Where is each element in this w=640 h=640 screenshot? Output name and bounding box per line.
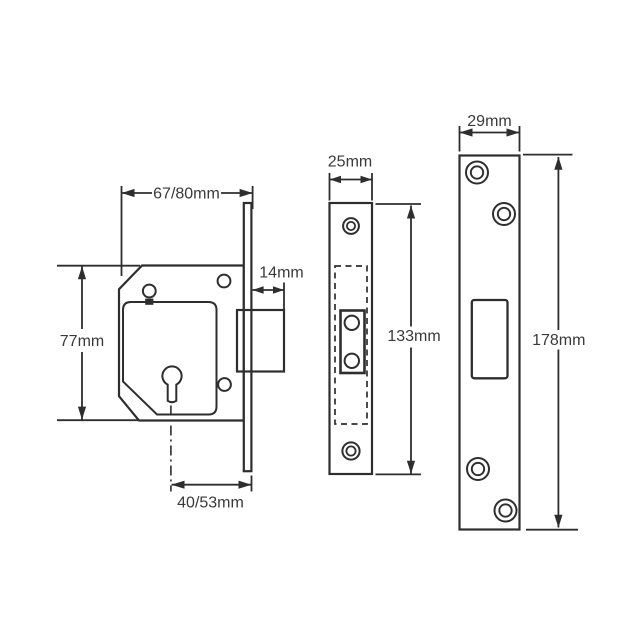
bolt-face	[341, 311, 365, 374]
faceplate-view	[330, 203, 373, 474]
mortice-lock-dimension-diagram: 67/80mm 77mm 14mm 40/53mm	[0, 0, 640, 640]
dim-faceplate-width: 25mm	[328, 154, 372, 201]
rivet-hole-icon	[143, 285, 156, 298]
diagram-canvas: 67/80mm 77mm 14mm 40/53mm	[0, 0, 640, 640]
arrowhead-icon	[172, 481, 185, 489]
dim-bolt-throw: 14mm	[253, 265, 304, 310]
dim-label-faceplate-width: 25mm	[328, 154, 372, 171]
arrowhead-icon	[273, 286, 284, 293]
dim-faceplate-height: 133mm	[376, 204, 441, 474]
arrowhead-icon	[554, 515, 562, 528]
arrowhead-icon	[361, 176, 373, 184]
arrowhead-icon	[240, 189, 253, 197]
arrowhead-icon	[407, 461, 415, 474]
dim-case-depth: 67/80mm	[122, 186, 253, 277]
dim-forend-height: 178mm	[523, 155, 585, 530]
dim-label-faceplate-height: 133mm	[387, 328, 440, 345]
faceplate-edge	[244, 203, 252, 471]
forend-view	[460, 156, 520, 530]
dim-label-case-height: 77mm	[60, 333, 104, 350]
arrowhead-icon	[239, 481, 252, 489]
arrowhead-icon	[330, 176, 342, 184]
dim-label-forend-height: 178mm	[532, 332, 585, 349]
rivet-hole-icon	[218, 275, 231, 288]
dim-label-backset: 40/53mm	[177, 495, 244, 512]
arrowhead-icon	[407, 206, 415, 219]
arrowhead-icon	[122, 189, 135, 197]
dim-label-bolt-throw: 14mm	[259, 265, 303, 282]
lock-body-view	[119, 203, 284, 471]
arrowhead-icon	[554, 157, 562, 170]
bolt-cutout	[472, 300, 508, 378]
arrowhead-icon	[78, 407, 86, 420]
rivet-hole-icon	[218, 378, 231, 391]
arrowhead-icon	[253, 286, 264, 293]
dim-label-case-depth: 67/80mm	[153, 186, 220, 203]
dim-label-forend-width: 29mm	[467, 113, 511, 130]
dim-forend-width: 29mm	[460, 113, 520, 152]
stop-pin-icon	[145, 299, 153, 305]
arrowhead-icon	[78, 266, 86, 279]
